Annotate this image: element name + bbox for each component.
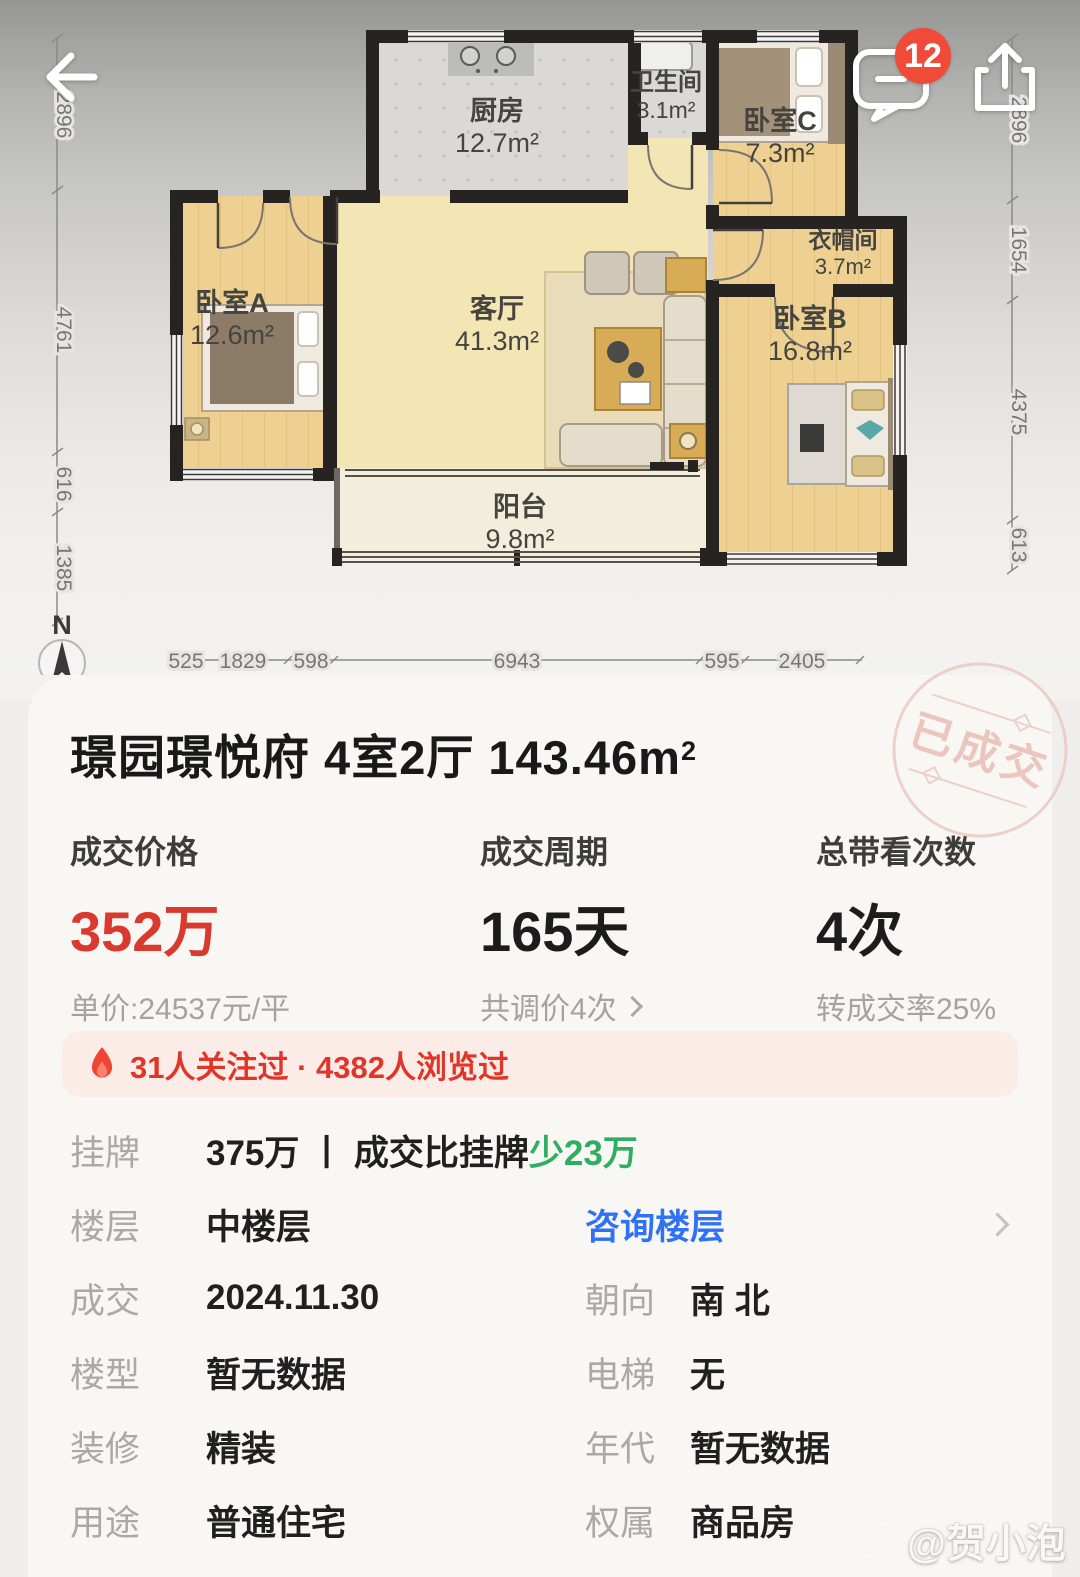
chevron-right-icon xyxy=(622,995,643,1016)
living-room-sofa-set-icon xyxy=(545,252,706,468)
svg-text:598: 598 xyxy=(293,650,328,673)
svg-text:1654: 1654 xyxy=(1007,227,1030,274)
svg-text:9.8m²: 9.8m² xyxy=(485,524,554,554)
row-label: 装修 xyxy=(70,1421,176,1472)
stove-icon xyxy=(448,38,534,76)
stat-total-showings: 总带看次数 4次 转成交率25% xyxy=(816,827,996,1028)
page-title: 璟园璟悦府 4室2厅 143.46m2 xyxy=(70,719,697,788)
room-label-kitchen: 厨房 xyxy=(470,96,524,126)
room-label-bath: 卫生间 xyxy=(630,69,702,96)
title-superscript: 2 xyxy=(681,736,697,766)
row-value: 中楼层 xyxy=(206,1199,311,1250)
stat-value: 165天 xyxy=(480,887,640,968)
svg-text:3.7m²: 3.7m² xyxy=(815,254,871,279)
stat-deal-cycle: 成交周期 165天 共调价4次 xyxy=(480,827,640,1028)
svg-text:525: 525 xyxy=(168,650,203,673)
row-label: 权属 xyxy=(585,1495,655,1546)
row-value: 暂无数据 xyxy=(690,1421,830,1472)
stat-label: 成交价格 xyxy=(70,827,290,873)
chevron-right-icon[interactable] xyxy=(985,1212,1009,1236)
price-adjustments-link[interactable]: 共调价4次 xyxy=(480,984,640,1028)
consult-floor-link[interactable]: 咨询楼层 xyxy=(585,1199,725,1250)
weibo-icon xyxy=(849,1520,897,1560)
room-label-closet: 衣帽间 xyxy=(809,227,878,253)
svg-text:2405: 2405 xyxy=(779,650,826,673)
price-reduction-highlight: 少23万 xyxy=(529,1134,638,1173)
row-label: 电梯 xyxy=(585,1347,655,1398)
sold-stamp-text: 已成交 xyxy=(903,706,1055,797)
row-label: 楼型 xyxy=(70,1347,176,1398)
comment-count-badge: 12 xyxy=(895,28,951,84)
row-label: 楼层 xyxy=(70,1199,176,1250)
svg-text:12.6m²: 12.6m² xyxy=(190,320,274,350)
stat-value: 4次 xyxy=(816,887,996,968)
svg-text:6943: 6943 xyxy=(494,650,541,673)
row-listing-price: 挂牌 375万 丨 成交比挂牌少23万 xyxy=(70,1113,1010,1187)
back-button[interactable] xyxy=(44,50,98,104)
row-value: 商品房 xyxy=(690,1495,795,1546)
svg-text:1385: 1385 xyxy=(52,545,75,592)
share-button[interactable] xyxy=(970,42,1040,114)
bathroom-sink-icon xyxy=(638,42,692,70)
svg-text:7.3m²: 7.3m² xyxy=(745,138,814,168)
row-value: 南 北 xyxy=(690,1273,770,1324)
flame-icon xyxy=(88,1046,116,1082)
svg-text:41.3m²: 41.3m² xyxy=(455,326,539,356)
compass-icon: N xyxy=(39,610,85,675)
row-deal-date: 成交 2024.11.30 朝向 南 北 xyxy=(70,1261,1010,1335)
room-label-bedC: 卧室C xyxy=(743,105,817,136)
room-label-living: 客厅 xyxy=(470,293,524,324)
svg-text:595: 595 xyxy=(704,650,739,673)
row-building-type: 楼型 暂无数据 电梯 无 xyxy=(70,1335,1010,1409)
row-value: 暂无数据 xyxy=(206,1347,346,1398)
stat-label: 成交周期 xyxy=(480,827,640,873)
svg-text:N: N xyxy=(52,610,72,640)
svg-text:4375: 4375 xyxy=(1007,389,1030,436)
svg-text:16.8m²: 16.8m² xyxy=(768,336,852,366)
detail-rows: 挂牌 375万 丨 成交比挂牌少23万 楼层 中楼层 咨询楼层 成交 2024.… xyxy=(70,1113,1010,1557)
bed-b-icon xyxy=(788,378,897,490)
row-value: 无 xyxy=(690,1347,725,1398)
row-value: 375万 丨 成交比挂牌少23万 xyxy=(206,1125,638,1176)
svg-text:616: 616 xyxy=(52,466,75,501)
row-value: 精装 xyxy=(206,1421,276,1472)
title-text: 璟园璟悦府 4室2厅 143.46m xyxy=(70,731,681,784)
room-label-bedB: 卧室B xyxy=(773,303,847,334)
svg-text:3.1m²: 3.1m² xyxy=(637,97,696,123)
row-label: 用途 xyxy=(70,1495,176,1546)
sold-stamp: 已成交 xyxy=(880,650,1080,850)
row-floor: 楼层 中楼层 咨询楼层 xyxy=(70,1187,1010,1261)
watermark-text: @贺小泡 xyxy=(907,1511,1066,1569)
row-decoration: 装修 精装 年代 暂无数据 xyxy=(70,1409,1010,1483)
svg-text:12.7m²: 12.7m² xyxy=(455,128,539,158)
room-label-bedA: 卧室A xyxy=(195,287,269,318)
row-label: 年代 xyxy=(585,1421,655,1472)
stat-sub: 转成交率25% xyxy=(816,984,996,1028)
svg-text:1829: 1829 xyxy=(220,650,267,673)
svg-text:4761: 4761 xyxy=(52,307,75,354)
popularity-banner: 31人关注过 · 4382人浏览过 xyxy=(62,1031,1018,1097)
row-value: 2024.11.30 xyxy=(206,1278,379,1318)
watermark: @贺小泡 xyxy=(849,1511,1066,1569)
popularity-text: 31人关注过 · 4382人浏览过 xyxy=(130,1042,509,1087)
row-label: 成交 xyxy=(70,1273,176,1324)
room-label-balcony: 阳台 xyxy=(493,491,547,522)
stat-deal-price: 成交价格 352万 单价:24537元/平 xyxy=(70,827,290,1028)
stat-sub: 单价:24537元/平 xyxy=(70,984,290,1028)
stat-value: 352万 xyxy=(70,887,290,968)
row-label: 挂牌 xyxy=(70,1125,176,1176)
share-icon xyxy=(978,46,1032,108)
row-value: 普通住宅 xyxy=(206,1495,346,1546)
row-label: 朝向 xyxy=(585,1273,655,1324)
svg-text:613: 613 xyxy=(1007,527,1030,562)
